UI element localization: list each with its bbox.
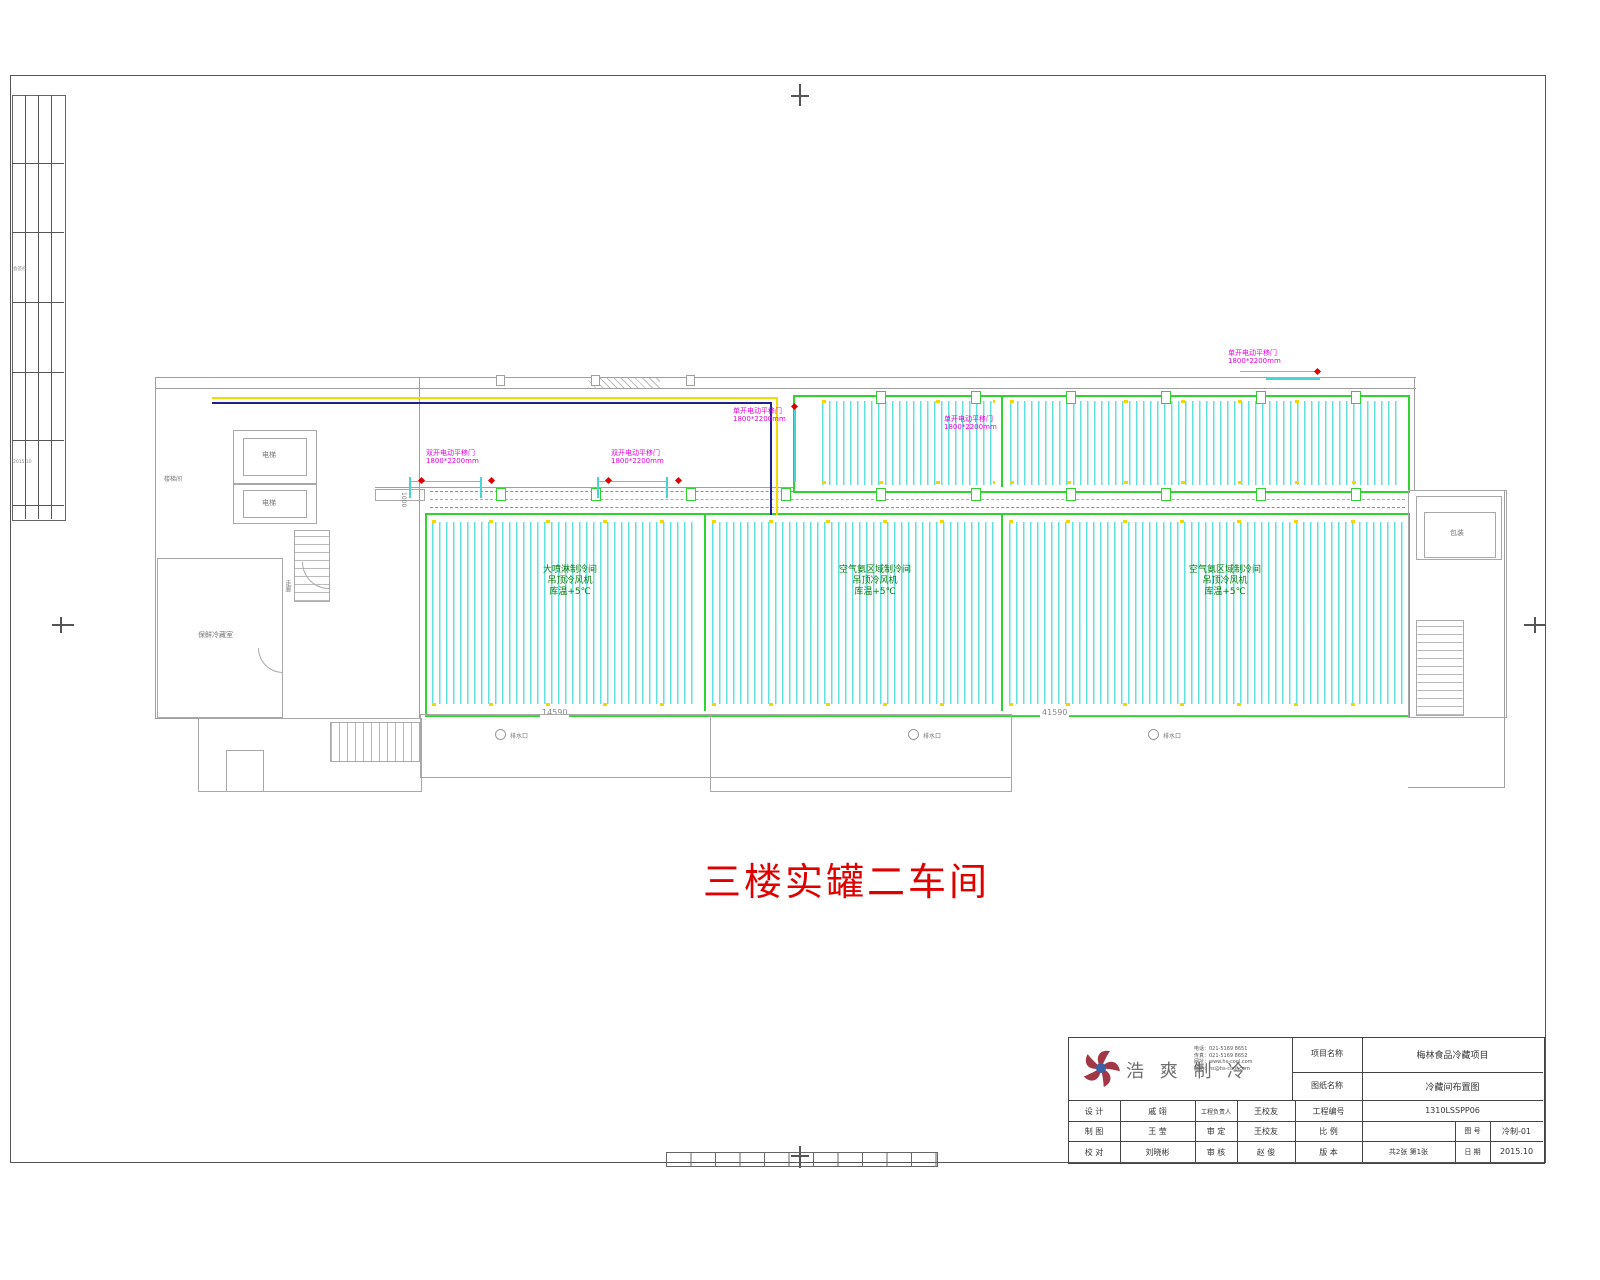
company-logo [1080,1047,1122,1089]
door-label: 单开电动平移门 1800*2200mm [1228,349,1281,365]
bay-label: 空气氨区域制冷间 吊顶冷风机 库温+5℃ [1155,565,1295,598]
pm-label: 工程负责人 [1195,1107,1237,1116]
coil-header [822,400,995,403]
room-label-packing: 包装 [1450,528,1464,538]
bay-label-l3: 库温+5℃ [805,587,945,598]
column [971,391,981,404]
hall-partition [704,515,706,711]
bay-label: 大喷淋制冷间 吊顶冷风机 库温+5℃ [500,565,640,598]
title-block-line [1068,1141,1543,1142]
review-value: 赵 俊 [1237,1147,1295,1158]
contact-line: 电话：021-5169 8651 [1194,1046,1253,1053]
date-value: 2015.10 [1490,1147,1543,1156]
bay-label-l1: 空气氨区域制冷间 [805,565,945,576]
center-mark-top [791,95,809,97]
corridor-line [430,507,1405,508]
wall [155,377,1416,378]
room-label-stairwell: 楼梯间 [164,474,182,483]
column [496,375,505,386]
wall [1414,377,1415,491]
bay-label-l3: 库温+5℃ [1155,587,1295,598]
approve-label: 审 定 [1195,1126,1237,1137]
check-label: 校 对 [1068,1147,1120,1158]
coil-header [712,520,996,523]
column [876,488,886,501]
projno-value: 1310LSSPP06 [1362,1106,1543,1115]
center-mark-left [60,617,62,633]
pm-value: 王校友 [1237,1106,1295,1117]
column [876,391,886,404]
sheets-value: 共2张 第1张 [1362,1147,1455,1157]
drain-symbol [1148,729,1159,740]
version-label: 版 本 [1295,1147,1362,1158]
fig-value: 冷制-01 [1490,1126,1543,1137]
column [1066,391,1076,404]
evaporator-coils [712,522,996,704]
design-value: 戚 翊 [1120,1106,1195,1117]
column [1161,488,1171,501]
supply-pipe [212,397,778,399]
coil-header [1009,520,1403,523]
coil-header [432,703,698,706]
door-label-line2: 1800*2200mm [733,415,786,423]
revision-strip-line [12,302,64,303]
wall [1504,490,1505,788]
door-label-line1: 单开电动平移门 [1228,349,1281,357]
revision-strip-line [51,95,52,519]
evaporator-coils [822,401,995,485]
door-label: 单开电动平移门 1800*2200mm [944,415,997,431]
company-contacts: 电话：021-5169 8651 传真：021-5169 8652 网址：www… [1194,1046,1253,1072]
drain-label: 排水口 [1163,731,1181,740]
review-label: 审 核 [1195,1147,1237,1158]
revision-note: 2015.10 [13,460,32,465]
drawing-sheet: 会签栏 2015.10 电梯 电梯 楼梯间 保鲜冷藏室 走廊 [0,0,1600,1280]
platform [710,714,1012,792]
revision-strip-line [12,505,64,506]
wall [375,487,795,488]
revision-strip-line [38,95,39,519]
dimension-text: 41590 [1040,708,1069,717]
revision-note: 会签栏 [13,266,27,272]
bay-label-l1: 空气氨区域制冷间 [1155,565,1295,576]
coil-header [1009,703,1403,706]
column [1066,488,1076,501]
evaporator-coils [1010,401,1402,485]
coil-header [712,703,996,706]
sliding-door [480,477,482,498]
evaporator-coils [1009,522,1403,704]
title-block-line [1068,1121,1543,1122]
draft-value: 王 莹 [1120,1126,1195,1137]
fig-label: 图 号 [1455,1126,1490,1136]
projno-label: 工程编号 [1295,1106,1362,1117]
coil-header [1010,481,1402,484]
room-label-elevator1: 电梯 [262,450,276,460]
hall-partition [1001,397,1003,487]
column [591,375,600,386]
center-mark-right [1534,617,1536,633]
room-label-corridor: 走廊 [283,580,292,592]
contact-line: 邮箱：hs@hs-cool.com [1194,1066,1253,1073]
wall [1408,787,1505,788]
door-label: 单开电动平移门 1800*2200mm [733,407,786,423]
project-label: 项目名称 [1292,1048,1362,1059]
revision-strip-line [12,372,64,373]
column [591,488,601,501]
return-pipe [212,402,772,404]
sliding-door [794,408,796,482]
wall [419,377,420,718]
approve-value: 王校友 [1237,1126,1295,1137]
wall [155,377,156,719]
stair-treads [1416,620,1464,716]
column [1351,391,1361,404]
wall [155,388,1416,389]
drawing-value: 冷藏间布置图 [1362,1080,1543,1093]
door-width-note: 1000 [400,492,407,507]
bay-label-l2: 吊顶冷风机 [500,576,640,587]
column [1256,391,1266,404]
door-leader [1240,371,1318,372]
revision-strip-line [25,95,26,519]
hall-partition [1001,515,1003,711]
door-label-line1: 双开电动平移门 [426,449,479,457]
door-label-line1: 单开电动平移门 [733,407,786,415]
door-label-line2: 1800*2200mm [426,457,479,465]
title-block-line [1068,1100,1543,1101]
column [686,488,696,501]
revision-strip-line [12,163,64,164]
evaporator-coils [432,522,698,704]
sliding-door [1266,377,1320,380]
room-label-cold-room: 保鲜冷藏室 [198,630,233,640]
date-label: 日 期 [1455,1147,1490,1157]
sliding-door [666,477,668,498]
revision-strip [12,95,66,521]
drawing-label: 图纸名称 [1292,1080,1362,1091]
coil-header [822,481,995,484]
bay-label-l3: 库温+5℃ [500,587,640,598]
project-value: 梅林食品冷藏项目 [1362,1048,1543,1061]
contact-line: 网址：www.hs-cool.com [1194,1059,1253,1066]
column [971,488,981,501]
sheet-title: 三楼实罐二车间 [703,851,990,906]
bay-label: 空气氨区域制冷间 吊顶冷风机 库温+5℃ [805,565,945,598]
check-value: 刘晓彬 [1120,1147,1195,1158]
column [1256,488,1266,501]
door-label-line1: 双开电动平移门 [611,449,664,457]
door-label-line2: 1800*2200mm [944,423,997,431]
draft-label: 制 图 [1068,1126,1120,1137]
title-block-line [1292,1072,1543,1073]
center-mark-left [52,624,74,626]
coil-header [432,520,698,523]
fold-strip [666,1152,938,1167]
revision-strip-line [12,232,64,233]
column [496,488,506,501]
room-label-elevator2: 电梯 [262,498,276,508]
bay-label-l2: 吊顶冷风机 [1155,576,1295,587]
scale-label: 比 例 [1295,1126,1362,1137]
door-label-line2: 1800*2200mm [1228,357,1281,365]
bay-label-l2: 吊顶冷风机 [805,576,945,587]
column [1161,391,1171,404]
bay-label-l1: 大喷淋制冷间 [500,565,640,576]
door-label: 双开电动平移门 1800*2200mm [426,449,479,465]
design-label: 设 计 [1068,1106,1120,1117]
stair-landing [226,750,264,792]
door-label: 双开电动平移门 1800*2200mm [611,449,664,465]
revision-strip-line [12,440,64,441]
column [1351,488,1361,501]
door-label-line1: 单开电动平移门 [944,415,997,423]
column [686,375,695,386]
column [781,488,791,501]
stair-treads [330,722,420,762]
door-label-line2: 1800*2200mm [611,457,664,465]
